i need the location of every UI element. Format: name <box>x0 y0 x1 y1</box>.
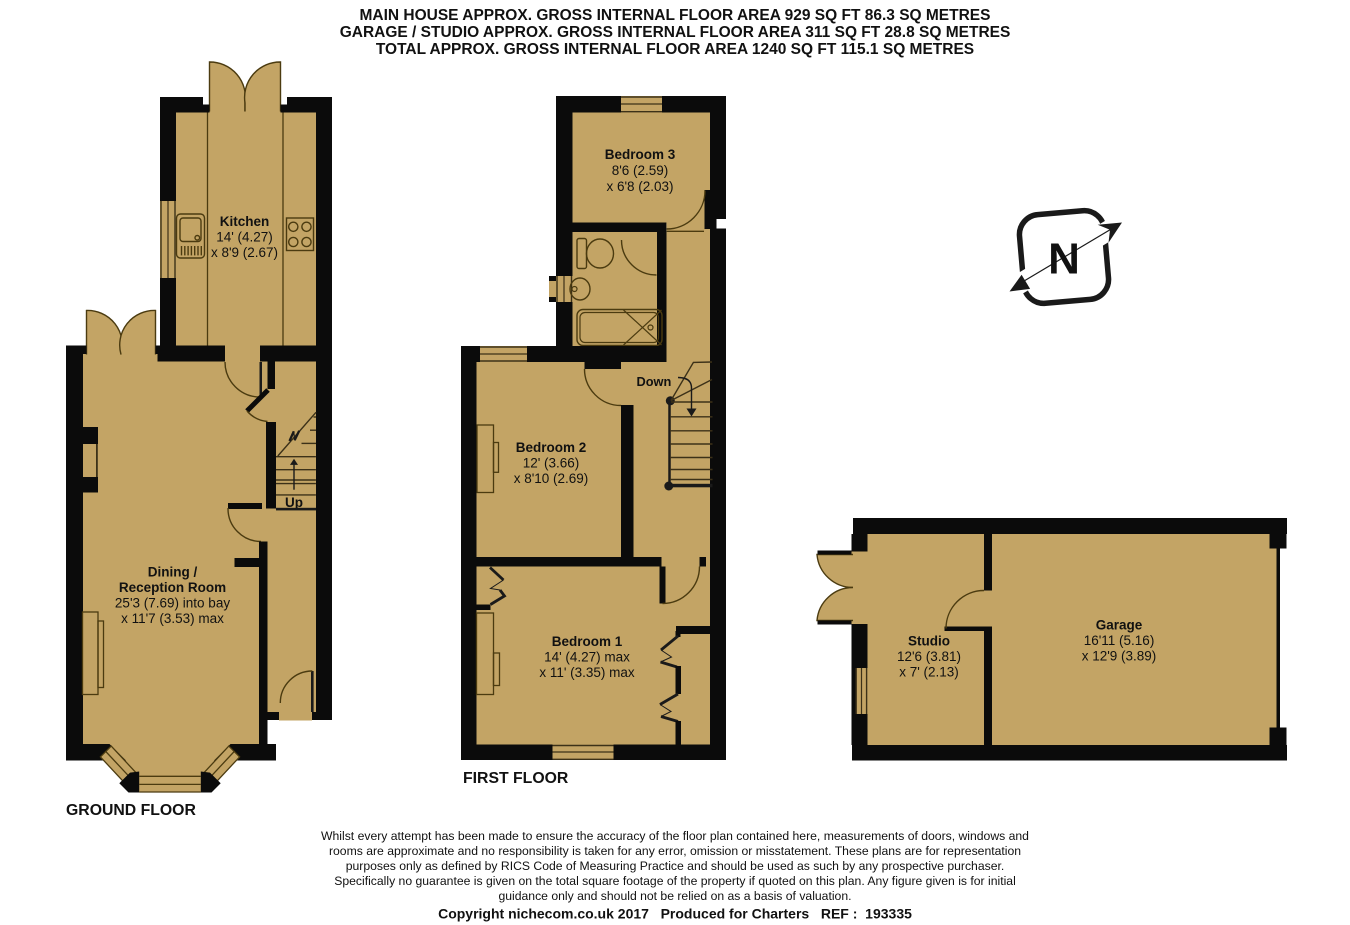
svg-text:16'11 (5.16): 16'11 (5.16) <box>1084 633 1155 648</box>
svg-text:MAIN HOUSE APPROX. GROSS INTER: MAIN HOUSE APPROX. GROSS INTERNAL FLOOR … <box>359 7 990 24</box>
svg-text:Bedroom 2: Bedroom 2 <box>516 440 587 455</box>
svg-text:Down: Down <box>637 374 672 389</box>
svg-text:purposes only as defined by RI: purposes only as defined by RICS Code of… <box>346 859 1005 873</box>
svg-text:Whilst every attempt has been: Whilst every attempt has been made to en… <box>321 829 1029 843</box>
svg-text:Dining /: Dining / <box>148 565 198 580</box>
svg-text:x 11' (3.35) max: x 11' (3.35) max <box>539 665 635 680</box>
svg-text:x 8'10 (2.69): x 8'10 (2.69) <box>514 471 589 486</box>
svg-text:8'6 (2.59): 8'6 (2.59) <box>612 163 669 178</box>
svg-text:N: N <box>1048 235 1080 284</box>
svg-text:25'3 (7.69) into bay: 25'3 (7.69) into bay <box>115 596 230 611</box>
svg-text:Copyright nichecom.co.uk 2017: Copyright nichecom.co.uk 2017 Produced f… <box>438 906 912 922</box>
svg-text:GARAGE / STUDIO APPROX. GROSS: GARAGE / STUDIO APPROX. GROSS INTERNAL F… <box>340 24 1011 41</box>
svg-text:x 8'9 (2.67): x 8'9 (2.67) <box>211 245 278 260</box>
svg-text:rooms are approximate and no r: rooms are approximate and no responsibil… <box>329 844 1021 858</box>
svg-text:GROUND FLOOR: GROUND FLOOR <box>66 802 196 819</box>
svg-text:x 12'9 (3.89): x 12'9 (3.89) <box>1082 649 1157 664</box>
svg-text:Bedroom 3: Bedroom 3 <box>605 147 676 162</box>
svg-text:Studio: Studio <box>908 634 950 649</box>
svg-text:Garage: Garage <box>1096 618 1143 633</box>
svg-text:guidance only and should not b: guidance only and should not be relied o… <box>498 889 851 903</box>
svg-text:FIRST FLOOR: FIRST FLOOR <box>463 770 569 787</box>
svg-text:x 11'7 (3.53) max: x 11'7 (3.53) max <box>121 611 224 626</box>
svg-text:14' (4.27): 14' (4.27) <box>216 230 273 245</box>
svg-text:TOTAL APPROX. GROSS INTERNAL F: TOTAL APPROX. GROSS INTERNAL FLOOR AREA … <box>376 41 974 58</box>
svg-text:x 7' (2.13): x 7' (2.13) <box>899 665 959 680</box>
svg-text:Bedroom 1: Bedroom 1 <box>552 634 623 649</box>
svg-text:Specifically no guarantee is g: Specifically no guarantee is given on th… <box>334 874 1016 888</box>
svg-text:x 6'8 (2.03): x 6'8 (2.03) <box>606 179 673 194</box>
svg-text:14' (4.27) max: 14' (4.27) max <box>544 650 630 665</box>
svg-text:12' (3.66): 12' (3.66) <box>523 456 580 471</box>
svg-text:Reception Room: Reception Room <box>119 580 226 595</box>
svg-text:12'6 (3.81): 12'6 (3.81) <box>897 649 961 664</box>
svg-text:Kitchen: Kitchen <box>220 214 270 229</box>
svg-text:Up: Up <box>285 495 303 510</box>
